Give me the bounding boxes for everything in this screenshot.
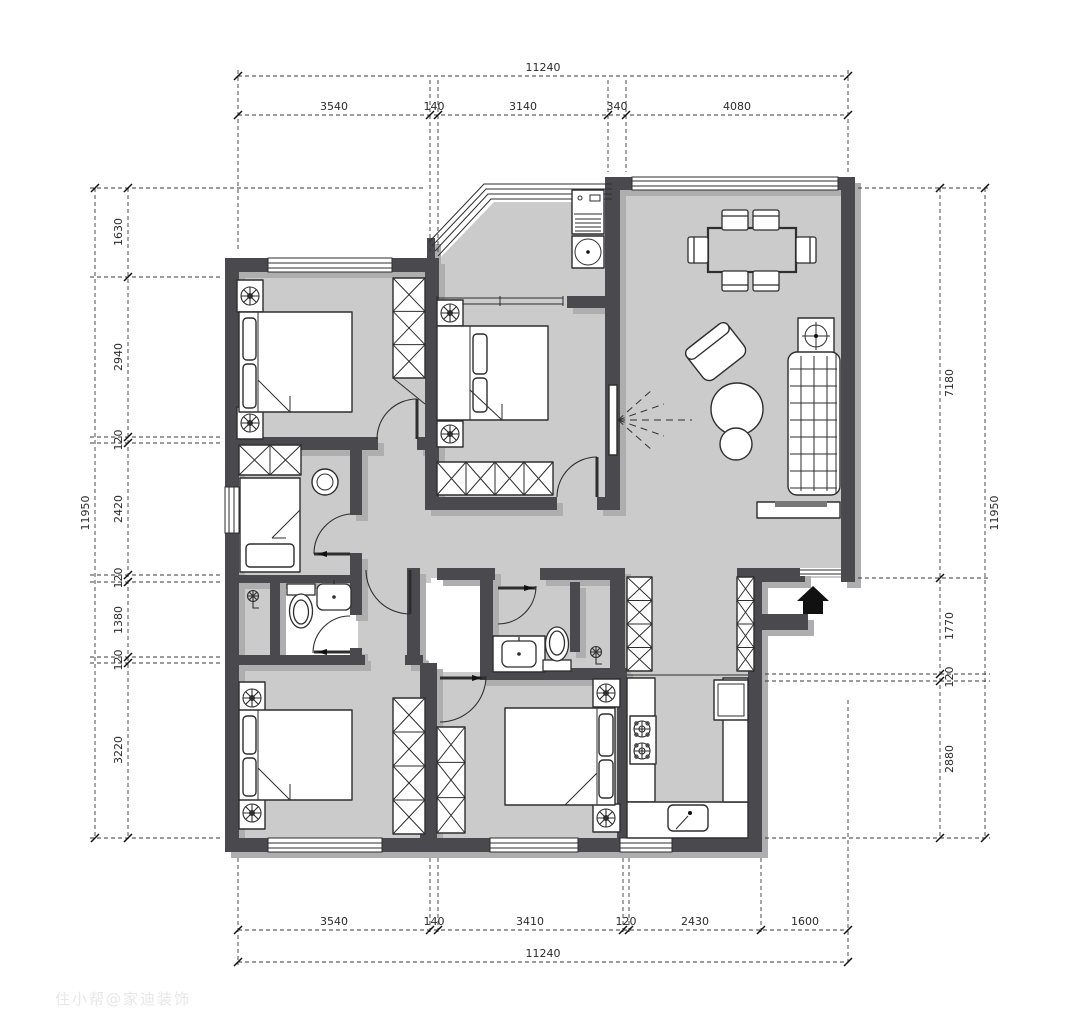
sofa [788,352,840,495]
side-table [720,428,752,460]
dining-chair [722,210,748,230]
pillow [599,714,613,756]
dim-label: 1770 [943,612,956,640]
tv-console [757,501,840,518]
dim-label: 2880 [943,745,956,773]
laundry-basin [572,236,604,268]
toilet [543,627,571,671]
door-bath-left [313,616,350,655]
dim-label: 1380 [112,606,125,634]
pillow [243,758,256,796]
window-bedroom-bottommiddle [490,838,578,852]
dim-label: 11950 [79,496,92,531]
entry-arrow-icon [797,586,829,614]
tv [775,501,827,507]
dim-label: 120 [112,650,125,671]
dim-label: 2420 [112,495,125,523]
dim-label: 4080 [723,100,751,113]
dim-label: 120 [112,430,125,451]
washbasin [502,637,536,667]
dim-label: 140 [424,915,445,928]
pillow [243,318,256,360]
kitchen-sink [668,805,708,831]
single-bed [240,478,300,572]
dim-label: 7180 [943,369,956,397]
pillow [473,334,487,374]
dining-chair [796,237,816,263]
ceiling-lamp-icon [241,414,259,432]
dim-label: 3540 [320,100,348,113]
pillow [246,544,294,567]
dim-label: 340 [607,100,628,113]
coffee-table [711,383,763,435]
ceiling-lamp-icon [441,304,459,322]
double-bed [505,708,615,805]
washbasin [317,580,351,610]
dim-label: 2430 [681,915,709,928]
window-kitchen [620,838,672,852]
window-bedroom-bottomleft [268,838,382,852]
floor-plan-canvas: 11240 3540 140 3140 340 4080 3540 140 34… [0,0,1080,1034]
ceiling-lamp-icon [441,425,459,443]
double-bed [437,326,548,420]
ceiling-lamp-icon [597,684,615,702]
stove [630,716,656,764]
ceiling-lamp-icon [241,287,259,305]
dim-label: 11240 [526,947,561,960]
dim-label: 1630 [112,218,125,246]
stool [312,469,338,495]
dim-label: 3410 [516,915,544,928]
double-bed [239,710,352,800]
dining-chair [753,210,779,230]
ceiling-lamp-icon [243,689,261,707]
dim-label: 3220 [112,736,125,764]
watermark: 住小帮@家迪装饰 [55,988,191,1009]
pillow [243,364,256,408]
ceiling-lamp-icon [597,809,615,827]
dim-label: 120 [943,667,956,688]
dining-chair [722,271,748,291]
dim-label: 140 [424,100,445,113]
double-bed [239,312,352,412]
window-study-left [225,487,239,533]
pillow [599,760,613,798]
dim-label: 3540 [320,915,348,928]
dim-label: 3140 [509,100,537,113]
ceiling-lamp-icon [243,804,261,822]
pillow [243,716,256,754]
dim-label: 1600 [791,915,819,928]
dim-label: 120 [616,915,637,928]
dining-chair [688,237,708,263]
dim-label: 11240 [526,61,561,74]
floor-plan-page: 11240 3540 140 3140 340 4080 3540 140 34… [0,0,1080,1034]
balcony-fixtures [572,190,604,268]
fridge [714,680,748,720]
toilet [287,584,315,628]
window-bedroom-topleft [268,258,392,272]
dining-chair [753,271,779,291]
window-living-top [632,177,838,190]
ac-unit [798,318,834,354]
washing-machine [572,190,604,234]
entry-door-sill [800,568,841,576]
dim-label: 120 [112,568,125,589]
dim-label: 11950 [988,496,1001,531]
dim-label: 2940 [112,343,125,371]
